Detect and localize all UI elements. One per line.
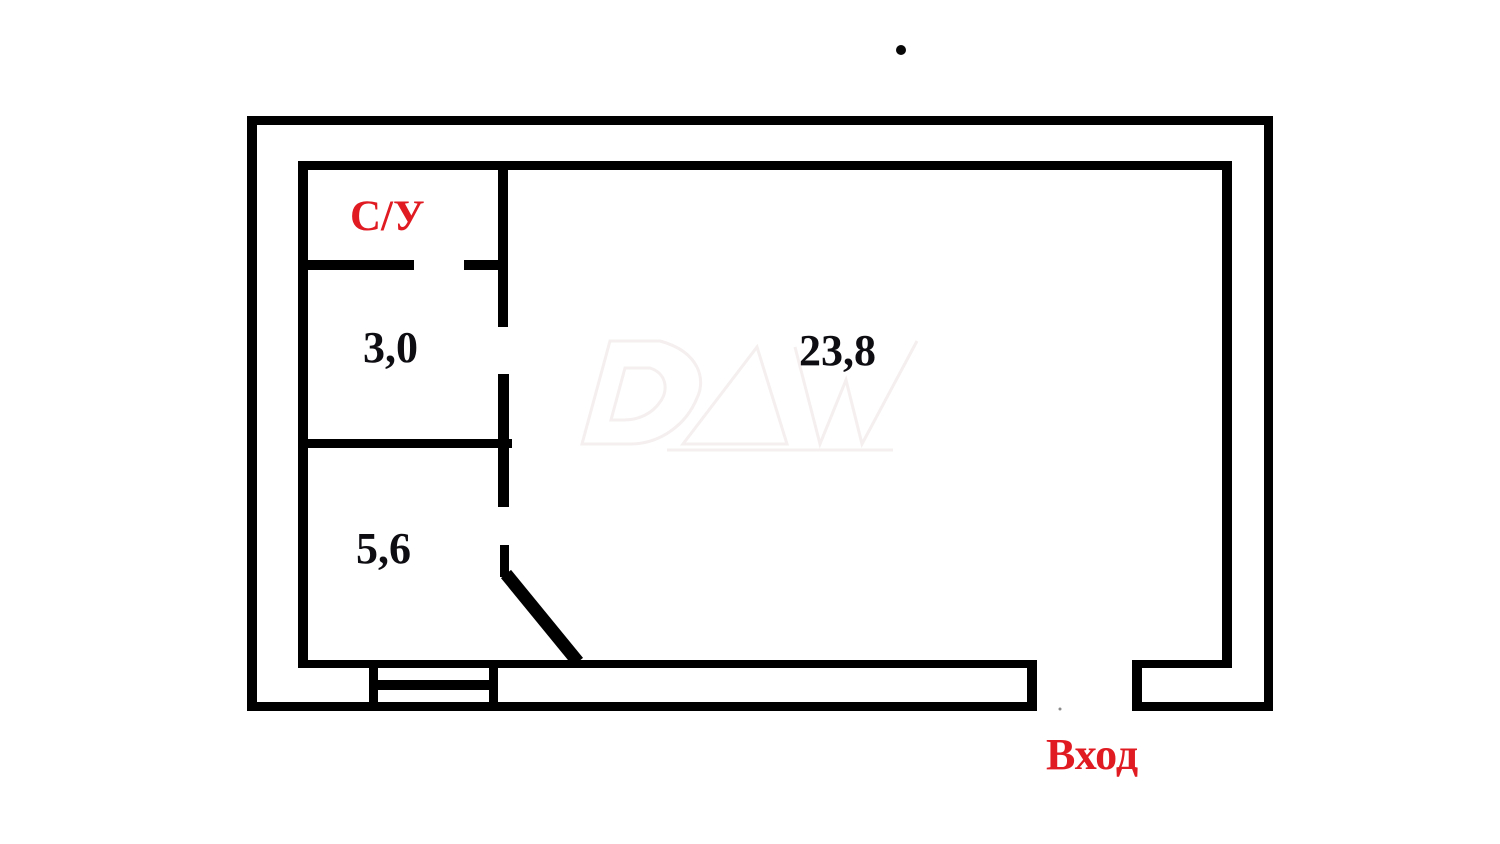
svg-text:5,6: 5,6 (356, 524, 411, 573)
svg-text:23,8: 23,8 (799, 326, 876, 375)
svg-text:Вход: Вход (1046, 730, 1138, 779)
svg-text:С/У: С/У (350, 193, 425, 240)
svg-text:3,0: 3,0 (363, 323, 418, 372)
